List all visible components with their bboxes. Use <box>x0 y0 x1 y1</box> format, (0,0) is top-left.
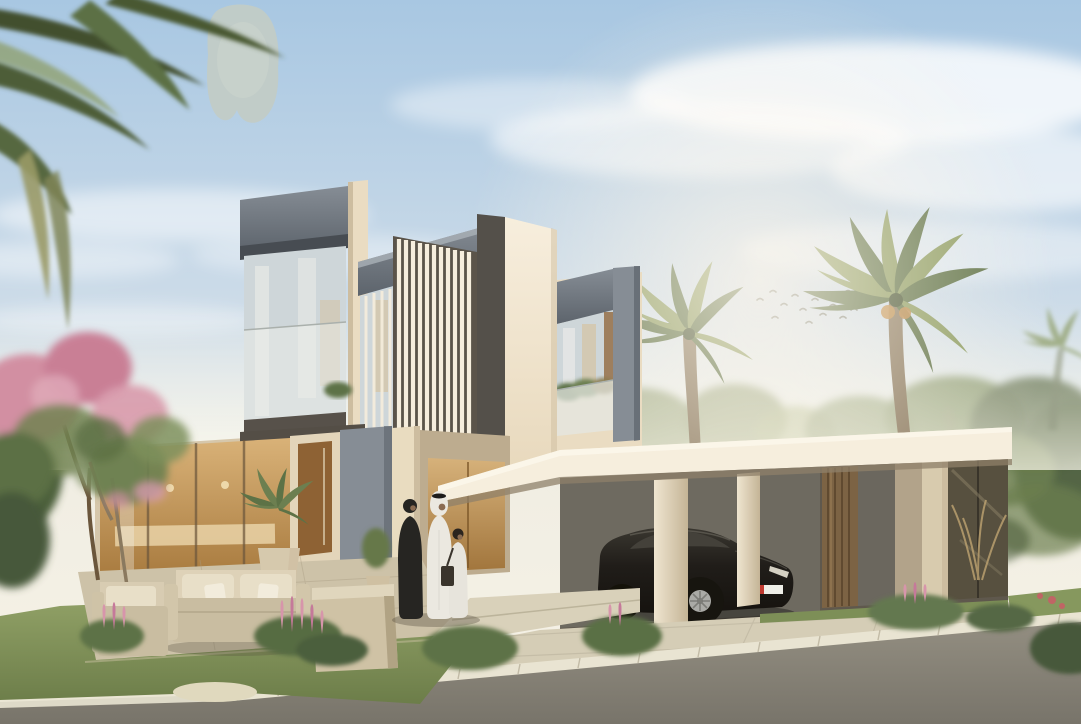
left-wing-upper <box>240 186 352 440</box>
villa-exterior-rendering <box>0 0 1081 724</box>
scene-canvas <box>0 0 1081 724</box>
pebble-patch <box>173 682 257 702</box>
carport-column-left <box>654 478 688 636</box>
bronze-slat-door <box>822 466 858 608</box>
sky-artifact-blob <box>207 4 279 122</box>
carport-column-mid <box>737 472 760 607</box>
dark-glass-fin <box>477 214 505 455</box>
left-balcony-rail <box>244 322 346 428</box>
central-louvre-screen <box>393 236 477 452</box>
shoulder-bag <box>441 566 454 586</box>
right-wing <box>554 266 642 458</box>
licence-plate <box>757 585 783 594</box>
entry-door-wood <box>298 441 332 556</box>
taupe-panel <box>895 462 922 602</box>
bright-wall <box>505 217 557 470</box>
